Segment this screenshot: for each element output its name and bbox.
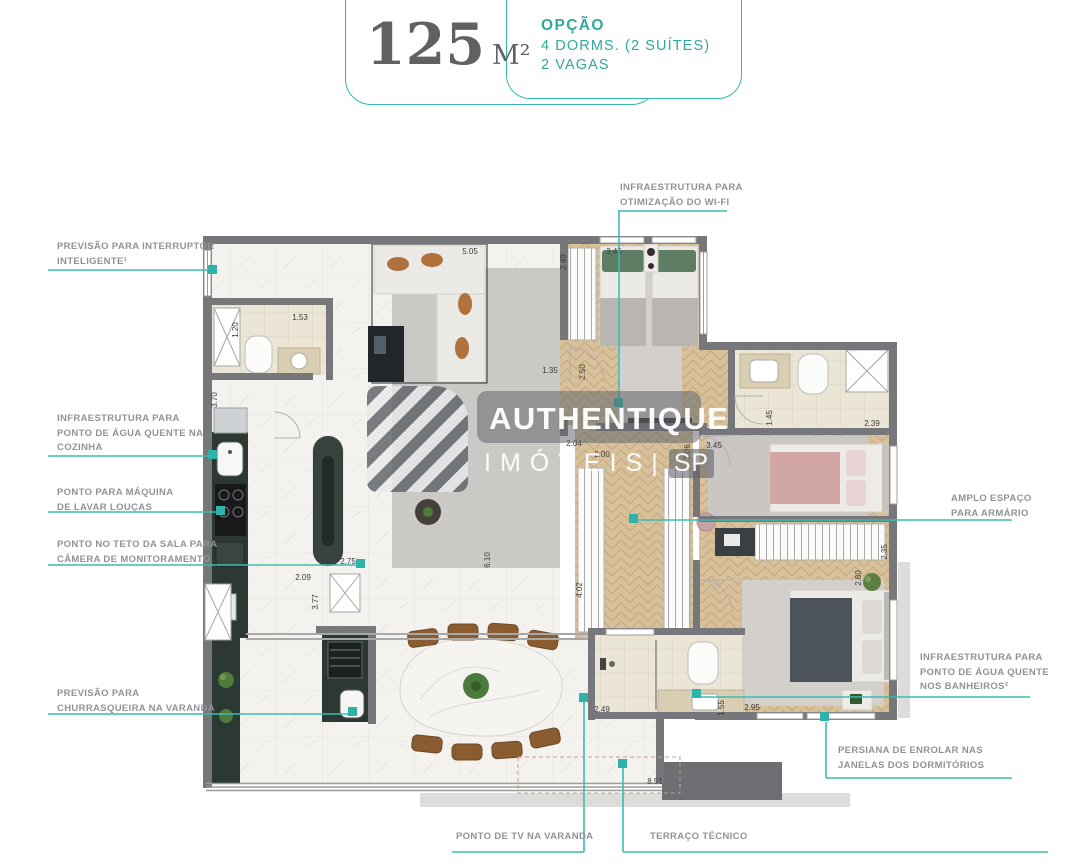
marker-armario — [629, 514, 638, 523]
marker-camera — [356, 559, 365, 568]
label-churrasqueira-varanda: PREVISÃO PARA CHURRASQUEIRA NA VARANDA — [57, 687, 215, 716]
svg-text:4.02: 4.02 — [575, 582, 584, 598]
marker-persiana — [820, 712, 829, 721]
svg-text:1.35: 1.35 — [542, 366, 558, 375]
unit-area: 125 M² — [366, 16, 530, 73]
svg-text:2.80: 2.80 — [854, 570, 863, 586]
unit-option: OPÇÃO 4 DORMS. (2 SUÍTES) 2 VAGAS — [541, 17, 710, 73]
label-wifi: INFRAESTRUTURA PARA OTIMIZAÇÃO DO WI-FI — [620, 181, 743, 210]
svg-text:2.07: 2.07 — [211, 649, 227, 658]
option-dorms: 4 DORMS. (2 SUÍTES) — [541, 38, 710, 54]
watermark-sp: SP — [669, 449, 714, 478]
marker-agua-cozinha — [208, 450, 217, 459]
option-vagas: 2 VAGAS — [541, 57, 710, 73]
svg-text:2.39: 2.39 — [864, 419, 880, 428]
svg-text:1.45: 1.45 — [765, 410, 774, 426]
label-maquina-lavar-loucas: PONTO PARA MÁQUINA DE LAVAR LOUÇAS — [57, 486, 173, 515]
svg-text:3.70: 3.70 — [210, 392, 219, 408]
svg-text:1.20: 1.20 — [231, 322, 240, 338]
area-value: 125 — [366, 16, 485, 73]
area-unit: M² — [492, 40, 530, 71]
svg-text:1.55: 1.55 — [717, 700, 726, 716]
label-tv-varanda: PONTO DE TV NA VARANDA — [456, 830, 593, 845]
label-agua-quente-cozinha: INFRAESTRUTURA PARA PONTO DE ÁGUA QUENTE… — [57, 412, 203, 456]
svg-text:2.49: 2.49 — [594, 705, 610, 714]
authentique-logo-icon — [367, 386, 468, 492]
svg-text:2.49: 2.49 — [559, 254, 568, 270]
svg-text:2.95: 2.95 — [744, 703, 760, 712]
option-title: OPÇÃO — [541, 17, 710, 35]
marker-maquina-loucas — [216, 506, 225, 515]
label-amplo-espaco-armario: AMPLO ESPAÇO PARA ARMÁRIO — [951, 492, 1032, 521]
svg-text:2.50: 2.50 — [578, 364, 587, 380]
marker-tv-varanda — [579, 693, 588, 702]
watermark-separator: | — [651, 449, 667, 478]
watermark-subtitle: IMÓVEIS | SP — [484, 449, 714, 478]
marker-terraco — [618, 759, 627, 768]
svg-text:8.51: 8.51 — [647, 777, 663, 786]
watermark-brand: AUTHENTIQUE — [489, 401, 729, 437]
svg-text:1.53: 1.53 — [292, 313, 308, 322]
marker-agua-banheiros — [692, 689, 701, 698]
label-camera-monitoramento: PONTO NO TETO DA SALA PARA CÂMERA DE MON… — [57, 538, 217, 567]
svg-text:3.77: 3.77 — [311, 594, 320, 610]
svg-text:5.05: 5.05 — [462, 247, 478, 256]
marker-churrasqueira — [348, 707, 357, 716]
label-interruptor-inteligente: PREVISÃO PARA INTERRUPTOR INTELIGENTE¹ — [57, 240, 214, 269]
label-persiana-enrolar: PERSIANA DE ENROLAR NAS JANELAS DOS DORM… — [838, 744, 984, 773]
watermark-imoveis: IMÓVEIS — [484, 449, 651, 478]
svg-text:3.45: 3.45 — [606, 247, 622, 256]
svg-text:2.09: 2.09 — [295, 573, 311, 582]
svg-text:6.10: 6.10 — [483, 552, 492, 568]
label-terraco-tecnico: TERRAÇO TÉCNICO — [650, 830, 748, 845]
svg-text:2.35: 2.35 — [880, 544, 889, 560]
label-agua-quente-banheiros: INFRAESTRUTURA PARA PONTO DE ÁGUA QUENTE… — [920, 651, 1049, 695]
